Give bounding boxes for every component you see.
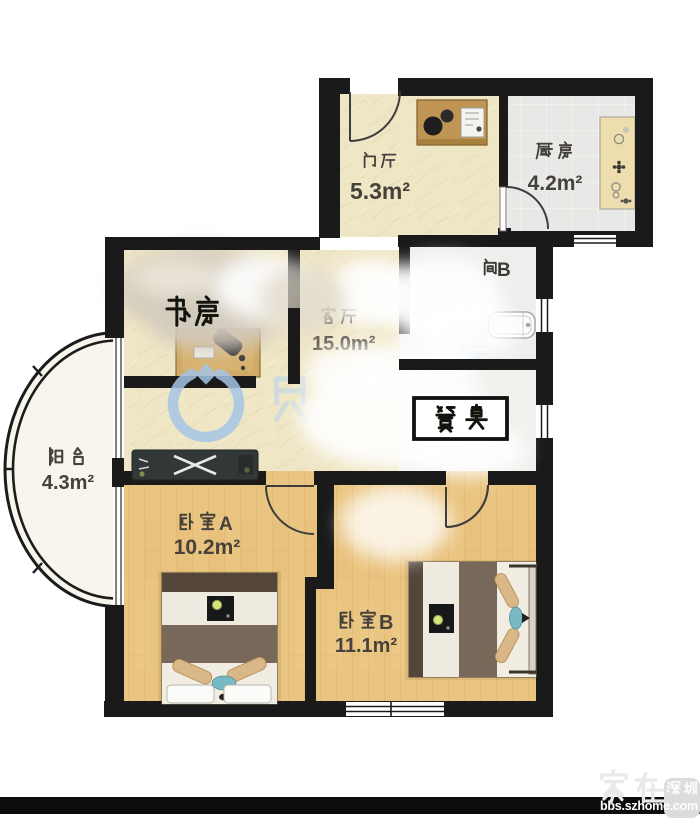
svg-text:B: B <box>379 612 393 634</box>
svg-text:bbs.szhome.com: bbs.szhome.com <box>600 799 698 813</box>
svg-text:A: A <box>219 514 233 535</box>
svg-text:11.1m²: 11.1m² <box>335 635 398 657</box>
svg-text:5.3m²: 5.3m² <box>350 178 410 204</box>
svg-text:10.2m²: 10.2m² <box>174 536 241 559</box>
svg-text:4.3m²: 4.3m² <box>42 472 95 494</box>
svg-text:B: B <box>497 260 511 281</box>
svg-text:4.2m²: 4.2m² <box>528 172 583 195</box>
